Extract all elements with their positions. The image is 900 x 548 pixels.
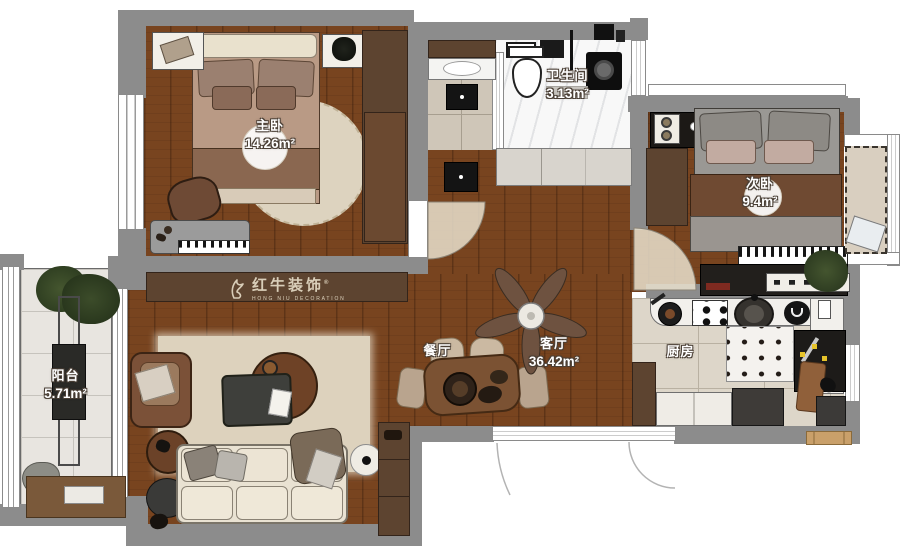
master-bedroom-area: 14.26m² xyxy=(205,135,335,153)
bay-window-glass xyxy=(887,134,900,266)
wall-bath-right-top xyxy=(630,18,648,40)
entry-door-swing-small xyxy=(629,442,675,488)
bath-lower-cabinet xyxy=(496,148,632,186)
food-bit-2 xyxy=(812,344,817,349)
wall-master-right xyxy=(408,24,428,202)
brand-text: 红牛装饰® HONG NIU DECORATION xyxy=(252,274,346,302)
speaker-cone-bottom xyxy=(661,130,672,141)
dining-label: 餐厅 xyxy=(390,343,485,360)
living-name: 客厅 xyxy=(494,336,614,353)
floor-lamp-center xyxy=(362,456,371,465)
kitchen-lower-cabinet xyxy=(656,392,732,426)
brand-subtitle: HONG NIU DECORATION xyxy=(252,296,346,302)
balcony-area: 5.71m² xyxy=(8,385,123,403)
balcony-name: 阳台 xyxy=(8,368,123,385)
kitchen-fridge xyxy=(816,396,846,426)
bathroom-label: 卫生间 3.13m² xyxy=(505,68,630,102)
dining-chair-right xyxy=(516,365,550,410)
kitchen-faucet xyxy=(751,294,758,301)
balcony-label: 阳台 5.71m² xyxy=(8,368,123,402)
living-area: 36.42m² xyxy=(494,353,614,371)
master-keyboard xyxy=(178,240,250,254)
master-bedroom-label: 主卧 14.26m² xyxy=(205,118,335,152)
bathroom-area: 3.13m² xyxy=(505,85,630,103)
registered-mark: ® xyxy=(324,280,331,286)
frying-pan-food xyxy=(665,309,675,319)
master-cushion-left xyxy=(212,86,252,110)
master-door-leaf xyxy=(408,200,428,258)
sofa-pillow-silver xyxy=(214,450,248,483)
brand-name: 红牛装饰® xyxy=(252,274,346,295)
floor-plan: 主卧 14.26m² 卫生间 3.13m² 次卧 9.4m² 阳台 5.71m²… xyxy=(0,0,900,548)
speaker-cone-top xyxy=(661,117,672,128)
second-bedroom-label: 次卧 9.4m² xyxy=(700,176,820,210)
wall-top-master xyxy=(118,10,414,26)
toilet-tank xyxy=(508,46,544,58)
sofa-seat-cushion-2 xyxy=(236,486,288,520)
wall-right-a xyxy=(844,98,860,138)
kitchen-label: 厨房 xyxy=(628,344,733,361)
dresser-item-1 xyxy=(164,226,172,234)
sofa-seat-cushion-3 xyxy=(291,486,343,520)
tall-cabinet-item xyxy=(384,430,402,440)
hall-cabinet xyxy=(428,40,496,58)
kitchen-dark-cabinet xyxy=(732,388,784,426)
bedroom2-ledge xyxy=(648,84,846,96)
master-bed-headboard xyxy=(195,34,317,58)
master-cushion-right xyxy=(256,86,296,110)
piano-red-detail xyxy=(706,283,730,290)
bathroom-name: 卫生间 xyxy=(505,68,630,85)
entry-door-threshold xyxy=(492,426,676,441)
dining-plate-inner xyxy=(452,381,468,397)
hall-mat-2-dot xyxy=(459,175,463,179)
living-label: 客厅 36.42m² xyxy=(494,336,614,370)
master-nightstand-plant xyxy=(332,37,356,61)
balcony-tray xyxy=(64,486,104,504)
bedroom2-cushion-left xyxy=(706,140,756,164)
second-bedroom-name: 次卧 xyxy=(700,176,820,193)
dining-name: 餐厅 xyxy=(390,343,485,360)
dining-dish-2 xyxy=(490,370,508,384)
food-bit-3 xyxy=(822,356,827,361)
bedroom2-plant xyxy=(804,250,848,292)
master-wardrobe-lower xyxy=(364,112,406,242)
kitchen-window xyxy=(845,344,860,402)
kitchen-door-threshold xyxy=(806,431,852,445)
master-bedroom-name: 主卧 xyxy=(205,118,335,135)
sofa-seat-cushion-1 xyxy=(181,486,233,520)
food-bit-1 xyxy=(800,352,805,357)
wall-left-upper xyxy=(118,10,146,98)
stove xyxy=(692,300,728,326)
hall-mat-1-dot xyxy=(460,95,464,99)
brand-watermark: 红牛装饰® HONG NIU DECORATION xyxy=(229,274,346,302)
master-window xyxy=(118,94,144,230)
bedroom2-wardrobe xyxy=(646,148,688,226)
bedroom2-cushion-right xyxy=(764,140,814,164)
hall-sink xyxy=(443,61,481,76)
bathroom-window xyxy=(631,40,646,96)
bedroom-doorway-floor xyxy=(630,230,650,292)
wall-right-c xyxy=(844,400,860,428)
bull-logo-icon xyxy=(229,276,248,300)
kitchen-small-item xyxy=(818,300,831,319)
shower-partition xyxy=(570,30,573,70)
kitchen-tall-cabinet xyxy=(632,362,656,426)
kitchen-name: 厨房 xyxy=(628,344,733,361)
entry-door-swing-large xyxy=(497,443,510,495)
bath-wall-fixture xyxy=(594,24,614,40)
second-bedroom-area: 9.4m² xyxy=(700,193,820,211)
kitchen-mat xyxy=(726,326,794,382)
kitchen-sink-basin xyxy=(744,305,764,323)
bath-wall-fixture-2 xyxy=(616,30,625,42)
